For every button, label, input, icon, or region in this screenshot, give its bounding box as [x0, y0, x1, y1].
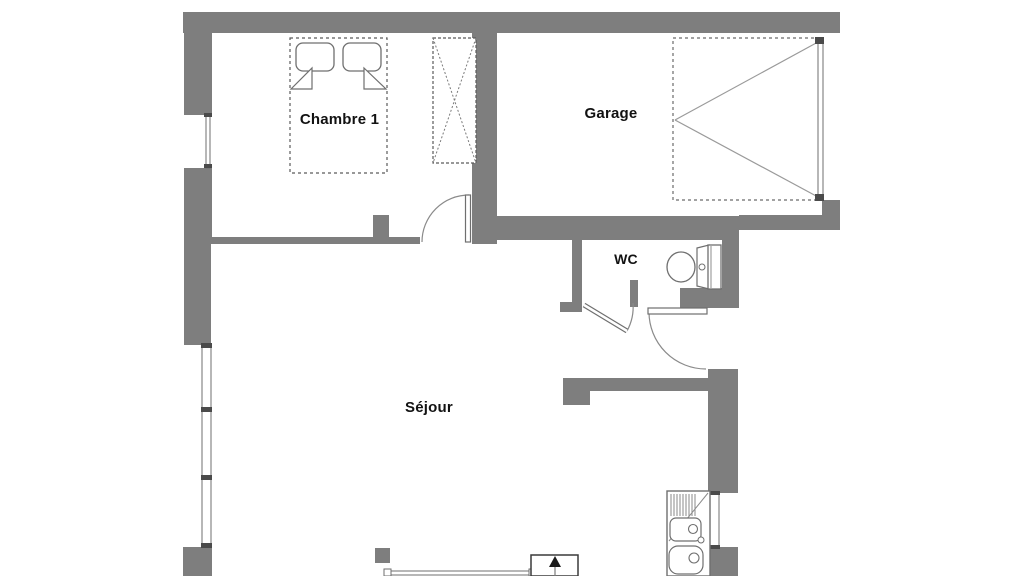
entry-door-icon [648, 308, 707, 369]
room-label-garage: Garage [580, 105, 642, 122]
room-label-sejour: Séjour [400, 399, 458, 416]
kitchen-sink-icon [667, 491, 710, 576]
floorplan-symbols [0, 0, 1024, 576]
wc-door-icon [584, 303, 633, 331]
garage-door-icon [673, 37, 824, 201]
toilet-icon [667, 245, 721, 289]
staircase-up-arrow-icon [531, 555, 578, 576]
floorplan-canvas: Chambre 1 Garage WC Séjour [0, 0, 1024, 576]
bedroom-door-icon [422, 195, 471, 242]
wardrobe-icon [433, 38, 476, 163]
living-room-window-icon [201, 343, 212, 548]
room-label-chambre-1: Chambre 1 [297, 111, 382, 128]
room-label-wc: WC [608, 251, 644, 267]
bedroom-window-icon [204, 113, 212, 168]
bottom-bay-window-icon [384, 569, 536, 576]
double-bed-icon [290, 38, 387, 173]
